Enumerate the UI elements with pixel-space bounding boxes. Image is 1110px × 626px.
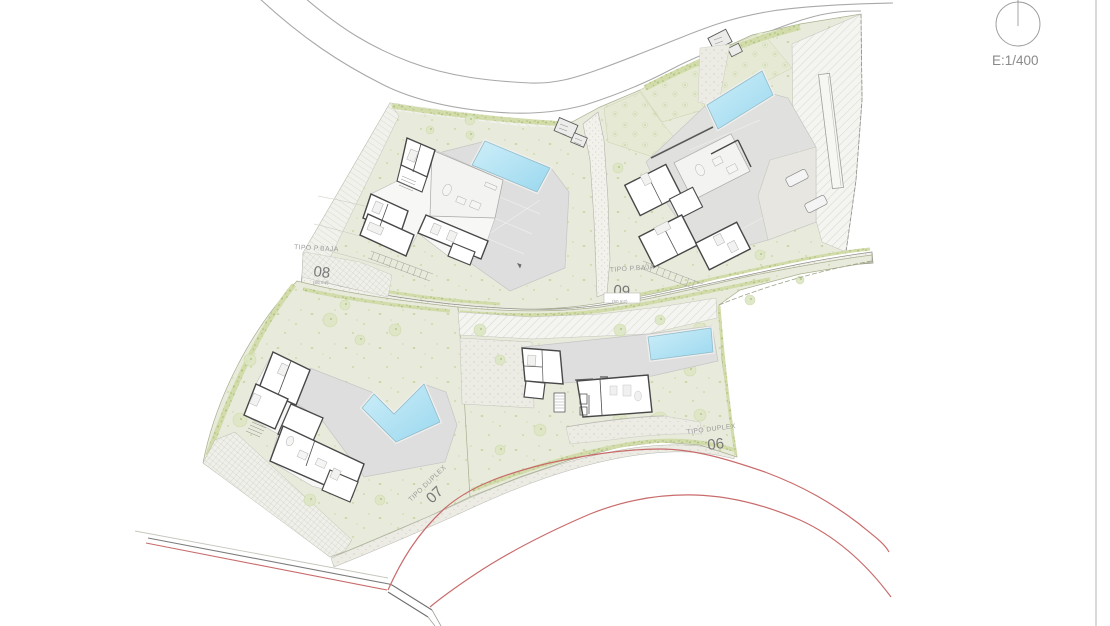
svg-text:(50 m2): (50 m2)	[313, 280, 329, 285]
svg-text:(50 m2): (50 m2)	[612, 299, 628, 304]
svg-text:06: 06	[706, 435, 725, 454]
svg-text:E:1/400: E:1/400	[992, 53, 1039, 68]
